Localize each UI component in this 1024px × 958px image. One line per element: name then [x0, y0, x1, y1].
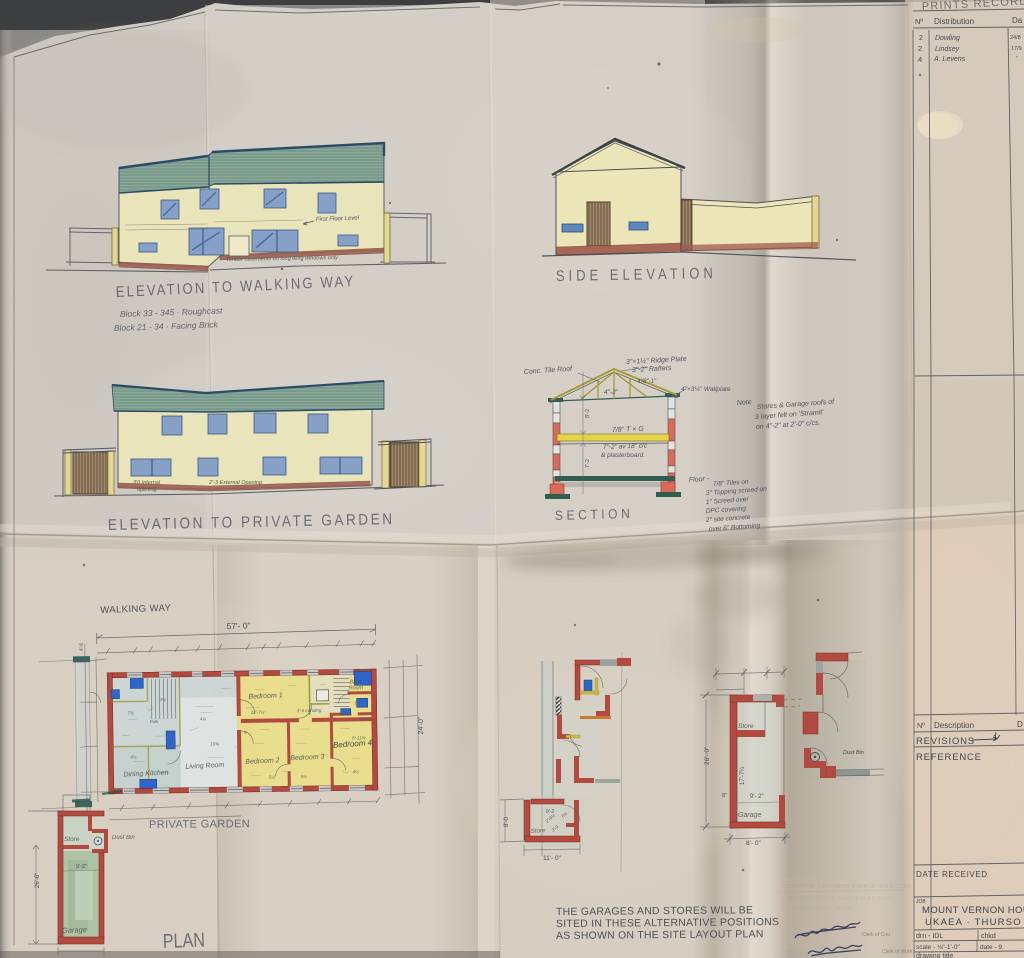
svg-text:4"-2": 4"-2"	[604, 389, 619, 396]
svg-text:9'- 2": 9'- 2"	[750, 794, 764, 800]
svg-text:7½: 7½	[128, 709, 135, 715]
svg-text:SITED IN THESE ALTERNATIVE POS: SITED IN THESE ALTERNATIVE POSITIONS	[556, 917, 779, 930]
svg-text:APPROVED BY THE DEAN OF GUILD: APPROVED BY THE DEAN OF GUILD COURT	[788, 896, 894, 902]
svg-text:4½: 4½	[130, 753, 137, 759]
svg-text:10¾: 10¾	[210, 741, 219, 746]
svg-text:Store: Store	[64, 836, 80, 843]
svg-text:2'-6¾: 2'-6¾	[359, 716, 371, 721]
svg-text:drawing title: drawing title	[916, 953, 953, 958]
svg-text:24'-0": 24'-0"	[418, 716, 425, 734]
svg-text:8'-2: 8'-2	[585, 409, 591, 418]
svg-text:Garage: Garage	[62, 925, 87, 935]
svg-text:SECTION: SECTION	[555, 505, 634, 523]
svg-text:57'- 0": 57'- 0"	[226, 620, 250, 631]
svg-text:DATE RECEIVED: DATE RECEIVED	[916, 870, 988, 879]
svg-text:& plasterboard.: & plasterboard.	[601, 452, 645, 459]
svg-text:WALKING WAY: WALKING WAY	[100, 603, 172, 616]
svg-text:Clerk of Cou: Clerk of Cou	[862, 932, 890, 938]
svg-text:8'-11¾: 8'-11¾	[352, 735, 366, 740]
svg-text:Store: Store	[531, 828, 546, 835]
svg-text:REVISIONS: REVISIONS	[916, 736, 975, 747]
svg-text:12'-7½": 12'-7½"	[251, 709, 267, 715]
svg-text:UKAEA · THURSO: UKAEA · THURSO	[925, 917, 1022, 928]
svg-text:PRIVATE GARDEN: PRIVATE GARDEN	[149, 818, 250, 831]
svg-text:Dn: Dn	[355, 700, 361, 705]
svg-text:Clerk of Work: Clerk of Work	[882, 949, 913, 955]
svg-text:5½: 5½	[269, 774, 276, 780]
svg-text:4'-6: 4'-6	[79, 643, 85, 651]
svg-text:AS SHOWN ON THE SITE LAYOUT PL: AS SHOWN ON THE SITE LAYOUT PLAN	[556, 929, 764, 942]
svg-text:4½: 4½	[353, 768, 360, 774]
svg-text:2: 2	[919, 35, 923, 42]
svg-text:8'-0: 8'-0	[504, 817, 510, 827]
svg-text:drn - IDL: drn - IDL	[916, 933, 943, 940]
svg-text:opening: opening	[137, 487, 158, 493]
svg-text:9'-2": 9'-2"	[76, 864, 87, 870]
svg-text:26'- 0": 26'- 0"	[704, 746, 711, 765]
svg-text:Garage: Garage	[738, 812, 761, 819]
svg-text:chkd: chkd	[981, 933, 996, 940]
svg-text:2'-3 External Opening: 2'-3 External Opening	[208, 480, 263, 486]
svg-text:Distribution: Distribution	[934, 17, 974, 26]
svg-text:4¾: 4¾	[200, 716, 207, 721]
svg-text:2½: 2½	[159, 696, 167, 702]
svg-text:Dust Bin: Dust Bin	[843, 750, 864, 756]
svg-text:Da: Da	[1012, 16, 1023, 25]
svg-text:4: 4	[918, 55, 922, 64]
svg-text:SIDE ELEVATION: SIDE ELEVATION	[556, 265, 717, 285]
svg-text:Dust Bin: Dust Bin	[112, 835, 135, 841]
svg-text:Lindsey: Lindsey	[935, 46, 960, 53]
svg-text:2: 2	[918, 44, 922, 53]
svg-text:Folk: Folk	[150, 719, 159, 724]
svg-text:17'-7¼: 17'-7¼	[740, 766, 746, 785]
svg-text:MOUNT VERNON HOUS: MOUNT VERNON HOUS	[922, 905, 1024, 916]
svg-text:”: ”	[1016, 56, 1018, 62]
svg-text:4'/8"-1": 4'/8"-1"	[637, 379, 657, 385]
svg-text:Description: Description	[934, 721, 974, 730]
svg-text:COUNTY OF CAITHNESS TOWN OF G: COUNTY OF CAITHNESS TOWN OF GOLD COUN	[784, 884, 911, 890]
svg-text:3'0 Internal: 3'0 Internal	[133, 480, 161, 486]
svg-text:11'- 0": 11'- 0"	[543, 855, 562, 862]
svg-text:A. Levens: A. Levens	[933, 56, 966, 63]
svg-text:PLAN: PLAN	[162, 929, 205, 952]
svg-text:D: D	[1017, 720, 1023, 729]
svg-text:7/8" T × G: 7/8" T × G	[612, 426, 645, 434]
svg-text:Store: Store	[738, 723, 754, 730]
svg-text:8'- 0": 8'- 0"	[746, 840, 761, 847]
svg-text:7'-2: 7'-2	[585, 459, 591, 468]
svg-text:4"×3¼" Wallplate: 4"×3¼" Wallplate	[681, 386, 731, 393]
svg-text:Floor -: Floor -	[689, 476, 710, 484]
svg-text:date - 9.: date - 9.	[980, 944, 1004, 951]
svg-text:6'-1¾: 6'-1¾	[341, 711, 352, 716]
svg-text:Room: Room	[348, 685, 363, 691]
svg-text:REFERENCE: REFERENCE	[916, 752, 982, 763]
svg-text:8": 8"	[722, 793, 727, 799]
svg-text:Note: Note	[737, 399, 752, 407]
svg-text:Nº: Nº	[917, 721, 925, 730]
svg-text:17/9: 17/9	[1011, 46, 1022, 52]
svg-text:Dowling: Dowling	[935, 35, 960, 42]
svg-text:scale - ⅛"-1'-0": scale - ⅛"-1'-0"	[916, 944, 960, 951]
svg-text:Nº: Nº	[915, 17, 923, 26]
svg-text:3'-6 Landing: 3'-6 Landing	[297, 708, 322, 713]
svg-text:24/8: 24/8	[1010, 35, 1021, 41]
svg-text:THE GARAGES AND STORES WILL BE: THE GARAGES AND STORES WILL BE	[556, 905, 753, 918]
svg-text:6½: 6½	[301, 773, 308, 779]
svg-text:AT WICK ON THE DAY O: AT WICK ON THE DAY OF	[792, 906, 852, 912]
